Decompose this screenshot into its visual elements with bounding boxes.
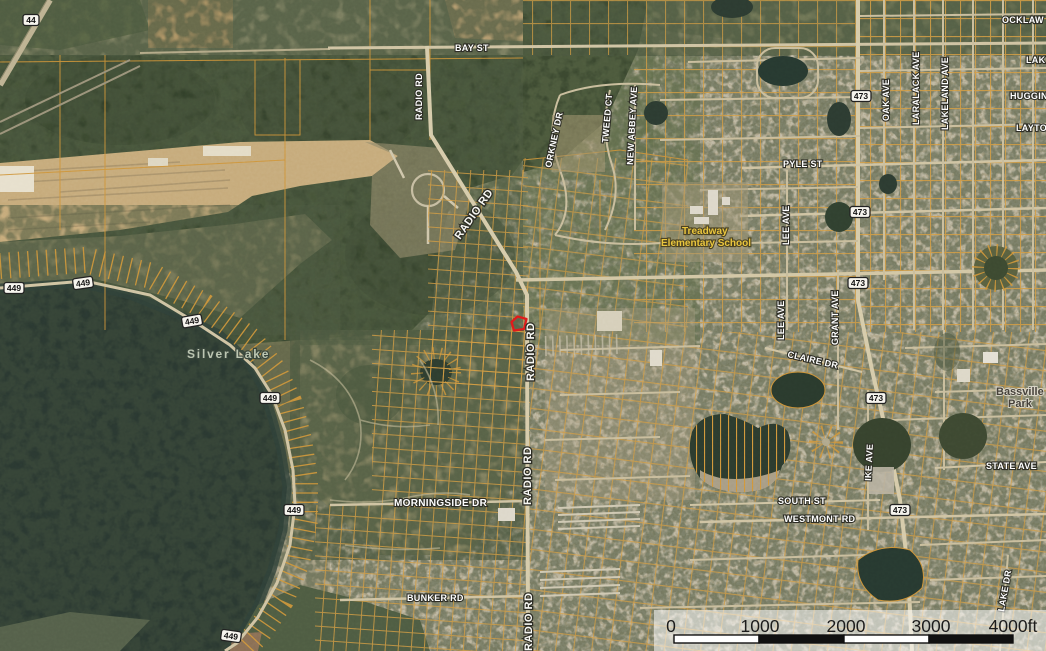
svg-text:RADIO RD: RADIO RD <box>525 323 537 381</box>
svg-text:473: 473 <box>853 207 867 217</box>
svg-text:LAKELAND AVE: LAKELAND AVE <box>940 57 950 130</box>
svg-text:2000: 2000 <box>827 616 866 636</box>
svg-text:RADIO RD: RADIO RD <box>523 593 535 651</box>
svg-text:Park: Park <box>1008 398 1033 410</box>
svg-text:LARALACK AVE: LARALACK AVE <box>911 51 921 125</box>
svg-text:BAY ST: BAY ST <box>455 43 489 53</box>
svg-text:1000: 1000 <box>741 616 780 636</box>
svg-text:473: 473 <box>854 91 868 101</box>
svg-text:MORNINGSIDE DR: MORNINGSIDE DR <box>394 498 488 509</box>
svg-text:LEE AVE: LEE AVE <box>776 300 786 340</box>
svg-text:449: 449 <box>223 630 239 642</box>
svg-text:473: 473 <box>869 393 883 403</box>
svg-text:PYLE ST: PYLE ST <box>783 159 823 169</box>
svg-text:Elementary School: Elementary School <box>661 238 751 249</box>
svg-text:SOUTH ST: SOUTH ST <box>778 496 826 506</box>
svg-text:473: 473 <box>851 278 865 288</box>
svg-text:RADIO RD: RADIO RD <box>414 73 424 120</box>
svg-text:STATE AVE: STATE AVE <box>986 461 1037 471</box>
svg-text:HUGGIN: HUGGIN <box>1010 91 1046 101</box>
svg-text:Silver Lake: Silver Lake <box>187 347 270 361</box>
svg-text:4000ft: 4000ft <box>989 616 1038 636</box>
svg-text:LAK: LAK <box>1026 55 1046 65</box>
svg-text:GRANT AVE: GRANT AVE <box>830 290 840 345</box>
svg-text:LAYTON: LAYTON <box>1016 123 1046 133</box>
svg-text:Treadway: Treadway <box>682 226 728 237</box>
svg-text:449: 449 <box>263 393 277 403</box>
svg-text:WESTMONT RD: WESTMONT RD <box>784 514 855 524</box>
svg-text:449: 449 <box>7 283 21 293</box>
svg-text:0: 0 <box>666 616 676 636</box>
svg-text:Bassville: Bassville <box>996 386 1044 398</box>
svg-text:3000: 3000 <box>912 616 951 636</box>
svg-text:IKE AVE: IKE AVE <box>863 444 875 482</box>
svg-text:473: 473 <box>893 505 907 515</box>
svg-text:449: 449 <box>287 505 301 515</box>
svg-text:BUNKER RD: BUNKER RD <box>407 593 464 603</box>
svg-text:OAK AVE: OAK AVE <box>881 79 891 121</box>
svg-text:OCKLAW: OCKLAW <box>1002 15 1044 25</box>
svg-text:LEE AVE: LEE AVE <box>781 205 791 245</box>
svg-text:RADIO RD: RADIO RD <box>522 447 534 505</box>
svg-text:449: 449 <box>75 277 91 289</box>
svg-text:44: 44 <box>26 15 36 25</box>
